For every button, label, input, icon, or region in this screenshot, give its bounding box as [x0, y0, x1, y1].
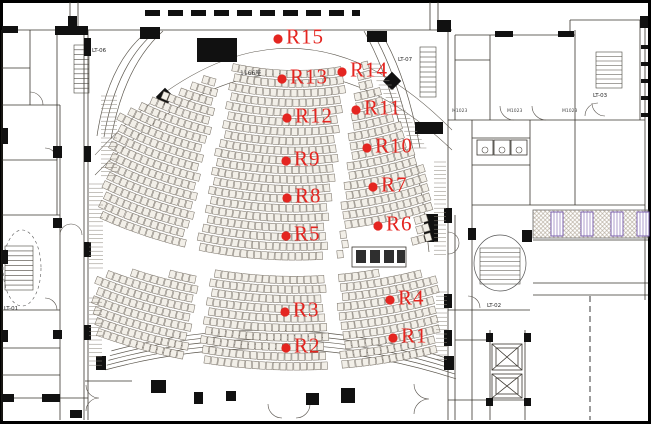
seat [245, 241, 252, 249]
seat [254, 145, 261, 153]
seat [254, 251, 261, 259]
wall-block [524, 398, 531, 406]
seat [234, 181, 241, 189]
seat [308, 175, 314, 183]
seat [340, 283, 347, 291]
seat [278, 166, 284, 174]
seat [251, 164, 258, 172]
seat [362, 169, 369, 177]
seat [369, 357, 376, 365]
seat [273, 295, 279, 303]
seat [282, 185, 288, 193]
seat [356, 291, 363, 299]
wall-block [151, 380, 166, 393]
seat [402, 312, 409, 320]
seat [265, 285, 271, 293]
seat [256, 155, 263, 163]
seat [354, 161, 361, 169]
point-dot-R8 [282, 193, 291, 202]
seat [376, 288, 383, 296]
seat [408, 272, 416, 281]
seat [237, 162, 244, 170]
seat [320, 285, 326, 293]
seat [346, 312, 353, 320]
seat [322, 175, 329, 183]
seat [269, 117, 275, 125]
auditorium-plan-drawing: LT-01LT-02LT-03LT-06LT-07M1023M1023M1023… [0, 0, 651, 424]
wall-block [140, 27, 160, 39]
seat [259, 242, 266, 250]
seat [256, 275, 263, 283]
seat [352, 340, 359, 348]
seat [251, 203, 258, 211]
seat [273, 362, 279, 370]
seat [264, 233, 270, 241]
seat [321, 362, 327, 370]
seat [252, 361, 258, 369]
seat [230, 349, 237, 357]
seat-count-label: 1166座 [240, 69, 261, 77]
seat [358, 339, 365, 347]
seat [285, 286, 291, 293]
seat [331, 154, 338, 162]
seat [261, 304, 267, 312]
seat [367, 348, 374, 356]
seat [227, 248, 234, 256]
seat [231, 132, 238, 140]
wall-block [522, 230, 532, 242]
point-label-R10: R10 [375, 134, 413, 158]
seat [396, 353, 403, 361]
seat [283, 224, 289, 232]
seat [239, 331, 246, 339]
seat [286, 324, 292, 331]
seat [223, 281, 230, 289]
seat [374, 279, 381, 287]
seat [345, 220, 352, 228]
wall-block [84, 242, 91, 257]
seat [291, 89, 297, 96]
seat [267, 333, 273, 341]
wall-block [2, 26, 18, 33]
seat [247, 76, 254, 84]
seat [390, 324, 397, 332]
wall-block [640, 16, 648, 28]
wall-block [68, 16, 77, 28]
seat [239, 104, 246, 112]
seat [348, 201, 355, 209]
seat [381, 346, 388, 354]
seat [232, 64, 239, 72]
seat [222, 189, 229, 197]
seat [260, 213, 267, 221]
seat [232, 103, 239, 111]
wall-block [197, 38, 237, 62]
seat [369, 289, 376, 297]
seat [366, 119, 373, 128]
wall-block [306, 393, 319, 405]
seat [387, 306, 394, 314]
seat [348, 321, 355, 329]
seat [320, 165, 327, 173]
seat [236, 123, 243, 131]
seat [287, 363, 293, 370]
seat [244, 322, 251, 330]
seat [403, 351, 410, 359]
seat [227, 112, 234, 120]
seat [214, 338, 221, 346]
wall-block [486, 333, 493, 342]
seat [264, 127, 271, 135]
seat [289, 253, 295, 260]
wall-block [226, 391, 236, 401]
seat [328, 68, 335, 76]
seat [339, 85, 346, 93]
seat [286, 99, 292, 107]
seat [227, 301, 234, 309]
seat [242, 153, 249, 161]
seat [299, 128, 305, 136]
seat [212, 207, 219, 215]
seat [262, 184, 269, 192]
seat [277, 89, 283, 97]
seat [415, 309, 423, 318]
seat [345, 273, 352, 281]
seat [323, 146, 330, 154]
seat [342, 360, 349, 368]
seat [334, 96, 341, 104]
wall-block [53, 146, 62, 158]
seat [185, 323, 192, 331]
seat [250, 313, 257, 321]
seat [253, 106, 260, 114]
seat [251, 96, 258, 104]
seat [248, 342, 255, 350]
seat [387, 345, 394, 353]
seat [378, 297, 385, 305]
seat [215, 309, 222, 317]
seat [253, 174, 260, 182]
wall-block [84, 146, 91, 162]
seat [280, 363, 286, 371]
seat [297, 276, 303, 283]
seat [312, 127, 318, 135]
seat [263, 155, 270, 163]
seat [375, 317, 382, 325]
seat [228, 339, 235, 347]
seat [238, 133, 245, 141]
seat [320, 323, 326, 331]
seat [204, 234, 211, 242]
seat [230, 93, 237, 101]
seat [270, 276, 276, 284]
seat [208, 186, 215, 194]
seat [221, 271, 228, 279]
seat [220, 300, 227, 308]
seat [382, 316, 389, 324]
seat [270, 194, 276, 202]
seat [255, 184, 262, 192]
seat [275, 252, 281, 260]
seat [371, 299, 378, 307]
seat [274, 334, 280, 342]
seat [294, 137, 300, 144]
seat [250, 193, 257, 201]
seat [325, 193, 332, 201]
seat [246, 173, 253, 181]
seat [270, 156, 276, 164]
seat [354, 349, 361, 357]
seat [354, 200, 361, 208]
seat [206, 298, 213, 306]
seat [356, 170, 363, 178]
seat [354, 282, 361, 290]
seat [377, 327, 384, 335]
point-label-R3: R3 [293, 298, 320, 322]
seat [263, 194, 269, 202]
seat [271, 233, 277, 241]
seat [168, 339, 175, 348]
seat [225, 238, 232, 246]
seat [306, 286, 312, 294]
seat [241, 302, 248, 310]
seat [266, 295, 272, 303]
point-dot-R5 [281, 231, 290, 240]
seat [222, 310, 229, 318]
seat [214, 217, 221, 225]
seat [225, 291, 232, 299]
seat [260, 294, 266, 302]
seat [330, 145, 337, 153]
seat [349, 360, 356, 368]
seat [281, 214, 287, 222]
seat [258, 165, 265, 173]
seat [341, 322, 348, 330]
seat [197, 233, 204, 241]
seat [361, 130, 368, 138]
seat [257, 232, 264, 240]
seat [226, 141, 233, 149]
seat [225, 170, 232, 178]
seat [352, 219, 359, 227]
seat [211, 357, 218, 365]
seat [258, 285, 264, 293]
seat [243, 231, 250, 239]
seat [278, 286, 284, 294]
seat [230, 229, 237, 237]
seat [356, 209, 363, 217]
seat [235, 340, 242, 348]
seat [367, 158, 374, 166]
point-dot-R6 [373, 221, 382, 230]
seat [269, 223, 275, 231]
seat [234, 113, 241, 121]
seat [361, 198, 368, 206]
seat [372, 269, 379, 277]
seat [219, 208, 226, 216]
seat [325, 87, 332, 95]
seat [156, 346, 164, 355]
seat [353, 190, 360, 198]
stair-label: LT-06 [92, 48, 107, 54]
seat [350, 331, 357, 339]
seat [383, 287, 390, 295]
seat [260, 107, 267, 115]
seat [233, 142, 240, 150]
wall-block [437, 20, 451, 32]
wall-block [641, 96, 648, 100]
seat [423, 347, 431, 356]
seat [248, 303, 255, 311]
seat [202, 346, 209, 354]
seat [223, 120, 230, 128]
seat [343, 211, 350, 219]
seat [261, 252, 267, 260]
seat [278, 353, 284, 361]
seat [228, 219, 235, 227]
seat [182, 342, 189, 350]
wall-block [2, 250, 8, 264]
seat [280, 176, 286, 184]
seat [245, 361, 252, 369]
point-label-R4: R4 [398, 286, 425, 310]
seat [259, 362, 265, 370]
seat [354, 92, 361, 100]
seat [388, 315, 395, 323]
seat [220, 179, 227, 187]
seat [253, 294, 260, 302]
wall-block [486, 398, 493, 406]
seat [213, 246, 220, 254]
seat [223, 160, 230, 168]
seat [281, 334, 287, 342]
seat [261, 146, 268, 154]
seat [244, 163, 251, 171]
seat [359, 81, 366, 90]
seat [272, 98, 278, 106]
seat [229, 190, 236, 198]
seat [350, 142, 357, 150]
seat [260, 333, 266, 341]
seat [250, 351, 257, 359]
point-label-R7: R7 [381, 173, 408, 197]
seat [216, 348, 223, 356]
seat [213, 299, 220, 307]
seat [363, 208, 370, 216]
door-label: M1023 [452, 108, 467, 114]
seat [224, 320, 231, 328]
seat [218, 290, 225, 298]
wall-block [341, 388, 355, 403]
seat [233, 330, 240, 338]
seat [257, 352, 263, 360]
seat [257, 126, 264, 134]
seat [179, 292, 186, 301]
seat [301, 176, 307, 184]
seat [355, 359, 362, 367]
seat [164, 319, 172, 328]
seat [359, 271, 366, 279]
seat [243, 312, 250, 320]
point-label-R12: R12 [295, 104, 333, 128]
seat [298, 89, 304, 97]
seat [207, 215, 214, 223]
seat [250, 125, 257, 133]
seat [338, 274, 345, 282]
seat [340, 231, 347, 239]
seat [279, 99, 285, 107]
seat [353, 311, 360, 319]
seat [269, 343, 275, 351]
seat [188, 304, 195, 312]
seat [230, 282, 237, 290]
point-label-R9: R9 [294, 147, 321, 171]
seat [276, 343, 282, 351]
seat [243, 192, 250, 200]
seat [268, 304, 274, 312]
seat [241, 341, 248, 349]
seat [210, 318, 217, 326]
seat [276, 276, 282, 284]
seat [161, 338, 169, 347]
seat [229, 82, 236, 90]
seat [256, 313, 262, 321]
seat [221, 150, 228, 158]
point-dot-R1 [388, 333, 397, 342]
seat [271, 285, 277, 293]
seat [275, 185, 281, 193]
seat [251, 284, 258, 292]
seat [224, 199, 231, 207]
seat [347, 282, 354, 290]
seat [228, 151, 235, 159]
floor-plan: LT-01LT-02LT-03LT-06LT-07M1023M1023M1023… [0, 0, 651, 424]
seat [347, 350, 354, 358]
seat [373, 308, 380, 316]
seat [410, 350, 417, 358]
seat [318, 275, 324, 283]
point-label-R14: R14 [350, 58, 388, 82]
seat [352, 151, 359, 159]
seat [216, 227, 223, 235]
point-label-R5: R5 [294, 222, 321, 246]
seat [287, 176, 293, 183]
seat [285, 353, 291, 360]
seat [367, 280, 374, 288]
seat [260, 174, 267, 182]
seat [332, 87, 339, 95]
seat [259, 136, 266, 144]
seat [265, 204, 271, 212]
seat [360, 349, 367, 357]
seat [360, 160, 367, 168]
seat [263, 88, 270, 96]
seat [242, 221, 249, 229]
seat [235, 220, 242, 228]
wall-block [96, 356, 106, 370]
seat [221, 339, 228, 347]
seat [186, 294, 193, 302]
seat [189, 275, 196, 283]
seat [240, 211, 247, 219]
seat [228, 272, 235, 280]
seat [395, 314, 402, 322]
seat [376, 356, 383, 364]
seat [238, 321, 245, 329]
seat [268, 185, 274, 193]
seat [181, 303, 188, 311]
seat [252, 241, 259, 249]
